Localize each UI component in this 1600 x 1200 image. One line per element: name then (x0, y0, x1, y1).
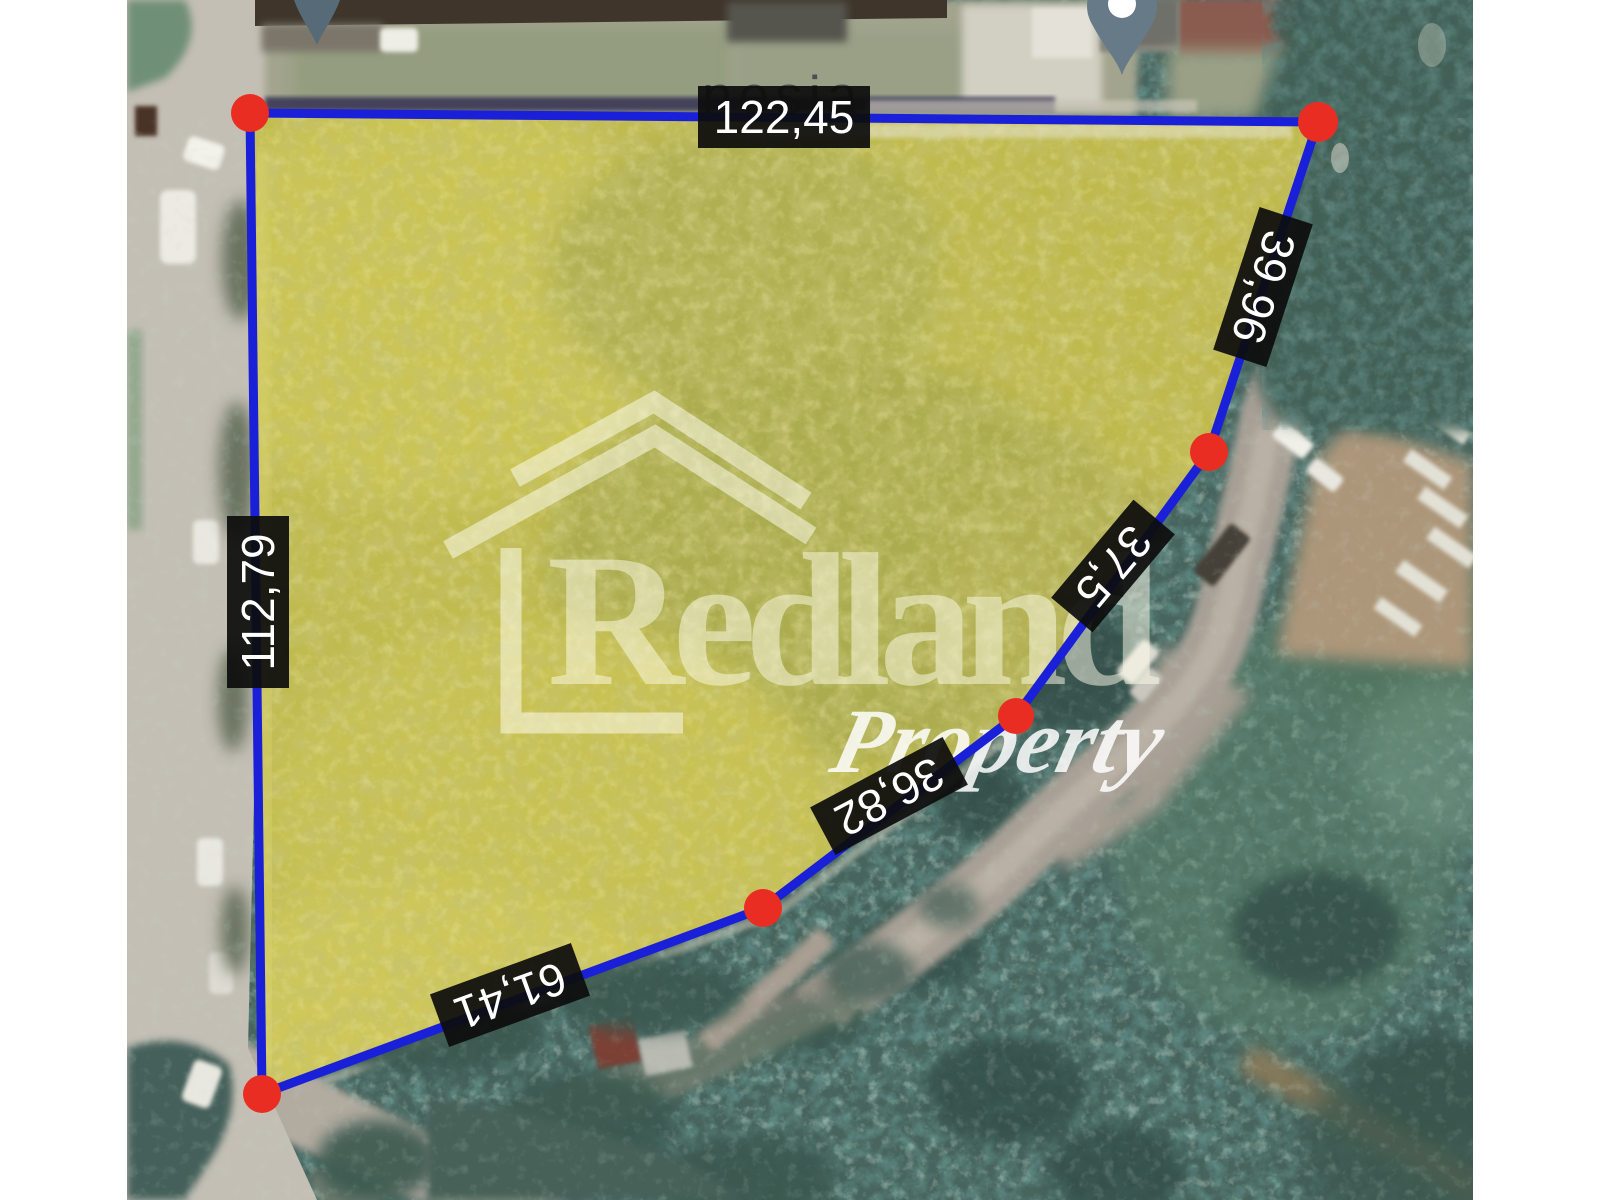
svg-text:112,79: 112,79 (232, 533, 284, 670)
svg-text:122,45: 122,45 (714, 91, 855, 143)
